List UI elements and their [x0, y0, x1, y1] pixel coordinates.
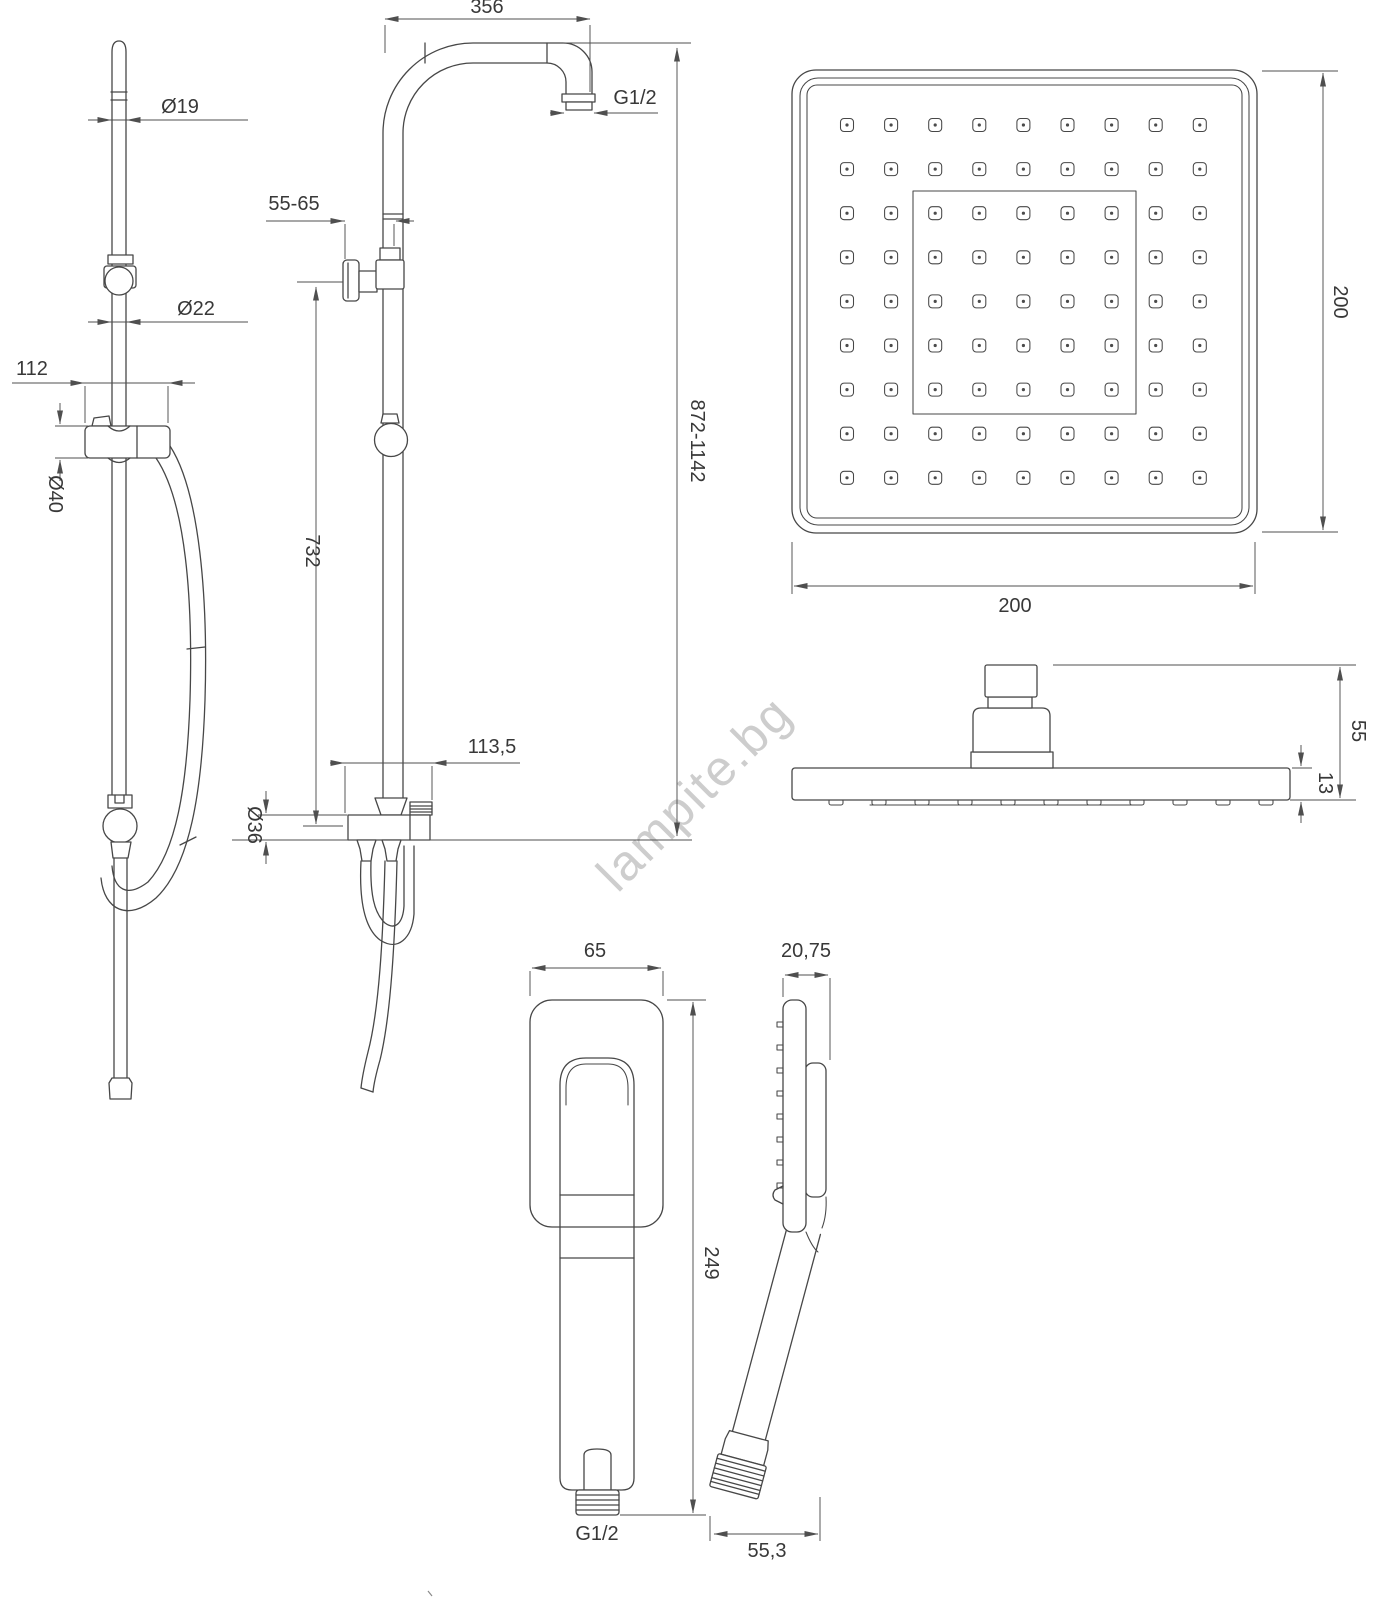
- head-side-view: [792, 665, 1290, 805]
- nozzle-grid: [841, 119, 1207, 485]
- hand-shower-side-view: [709, 1000, 828, 1499]
- dim-head-height: 200: [1329, 285, 1351, 318]
- dim-dia40: Ø40: [44, 475, 66, 513]
- nozzle-dot: [845, 300, 848, 303]
- nozzle-dot: [1066, 212, 1069, 215]
- nozzle-dot: [890, 168, 893, 171]
- nozzle-dot: [934, 388, 937, 391]
- nozzle-dot: [845, 212, 848, 215]
- nozzle-dot: [1198, 168, 1201, 171]
- dim-head-total: 55: [1347, 720, 1369, 742]
- dim-total-height: 872-1142: [686, 399, 708, 482]
- dim-head-width: 200: [998, 595, 1031, 617]
- nozzle-dot: [1110, 300, 1113, 303]
- nozzle-dot: [1198, 432, 1201, 435]
- nozzle-dot: [1022, 476, 1025, 479]
- nozzle-dot: [1022, 123, 1025, 126]
- nozzle-dot: [1110, 344, 1113, 347]
- nozzle-dot: [934, 256, 937, 259]
- nozzle-dot: [934, 212, 937, 215]
- nozzle-dot: [1066, 476, 1069, 479]
- dim-112: 112: [16, 358, 48, 380]
- nozzle-dot: [1154, 300, 1157, 303]
- nozzle-dot: [845, 432, 848, 435]
- dim-356: 356: [470, 0, 503, 18]
- nozzle-dot: [978, 256, 981, 259]
- dim-plate-13: 13: [1314, 772, 1336, 794]
- nozzle-dot: [934, 123, 937, 126]
- nozzle-dot: [890, 123, 893, 126]
- nozzle-dot: [1154, 212, 1157, 215]
- nozzle-dot: [1198, 300, 1201, 303]
- dim-20-75: 20,75: [781, 940, 831, 962]
- nozzle-dot: [890, 432, 893, 435]
- dim-g12-top: G1/2: [613, 87, 656, 109]
- nozzle-dot: [1110, 432, 1113, 435]
- dim-249: 249: [700, 1246, 722, 1279]
- nozzle-dot: [1110, 123, 1113, 126]
- nozzle-dot: [1022, 388, 1025, 391]
- shower-set-dimension-drawing: lampite.bg Ø19 Ø22: [0, 0, 1377, 1600]
- nozzle-dot: [1022, 432, 1025, 435]
- rail-side-view: [85, 41, 206, 1099]
- nozzle-dot: [978, 344, 981, 347]
- nozzle-dot: [845, 476, 848, 479]
- dim-55-3: 55,3: [748, 1540, 787, 1562]
- dim-dia19: Ø19: [161, 96, 199, 118]
- nozzle-dot: [1198, 476, 1201, 479]
- nozzle-dot: [934, 344, 937, 347]
- nozzle-dot: [978, 476, 981, 479]
- nozzle-dot: [890, 476, 893, 479]
- nozzle-dot: [1110, 212, 1113, 215]
- hand-grip-angled: [709, 1224, 828, 1500]
- nozzle-dot: [1066, 123, 1069, 126]
- spray-tick: [777, 1137, 783, 1142]
- nozzle-dot: [1066, 256, 1069, 259]
- spray-tick: [777, 1114, 783, 1119]
- nozzle-dot: [1154, 256, 1157, 259]
- nozzle-dot: [978, 300, 981, 303]
- nozzle-dot: [978, 123, 981, 126]
- head-top-view: [792, 70, 1257, 533]
- column-front-view: [343, 43, 595, 1092]
- nozzle-dot: [1066, 300, 1069, 303]
- head-top-dimensions: 200 200: [792, 71, 1351, 617]
- spray-tick: [777, 1022, 783, 1027]
- nozzle-dot: [890, 212, 893, 215]
- nozzle-dot: [1154, 388, 1157, 391]
- nozzle-dot: [845, 123, 848, 126]
- nozzle-dot: [1198, 344, 1201, 347]
- nozzle-dot: [1022, 212, 1025, 215]
- spray-tick: [777, 1045, 783, 1050]
- dim-dia36: Ø36: [243, 806, 265, 844]
- spray-tick: [777, 1091, 783, 1096]
- dim-g12-hand: G1/2: [575, 1523, 618, 1545]
- nozzle-dot: [978, 432, 981, 435]
- nozzle-dot: [845, 388, 848, 391]
- dim-65: 65: [584, 940, 606, 962]
- nozzle-dot: [1022, 300, 1025, 303]
- hand-spray-ticks: [777, 1022, 783, 1188]
- nozzle-dot: [934, 300, 937, 303]
- nozzle-dot: [890, 256, 893, 259]
- nozzle-dot: [1198, 212, 1201, 215]
- print-speck: [428, 1591, 432, 1596]
- nozzle-dot: [1154, 476, 1157, 479]
- nozzle-dot: [845, 344, 848, 347]
- technical-drawing-page: lampite.bg Ø19 Ø22: [0, 0, 1377, 1600]
- nozzle-dot: [1066, 388, 1069, 391]
- nozzle-dot: [1022, 256, 1025, 259]
- nozzle-dot: [1110, 476, 1113, 479]
- nozzle-dot: [1110, 388, 1113, 391]
- nozzle-dot: [1154, 168, 1157, 171]
- nozzle-dot: [1154, 432, 1157, 435]
- nozzle-dot: [845, 256, 848, 259]
- nozzle-dot: [934, 432, 937, 435]
- nozzle-dot: [1198, 388, 1201, 391]
- nozzle-dot: [1198, 256, 1201, 259]
- nozzle-dot: [1066, 168, 1069, 171]
- nozzle-dot: [1110, 168, 1113, 171]
- nozzle-dot: [1066, 432, 1069, 435]
- dim-732: 732: [301, 534, 323, 567]
- column-dimensions: 356 G1/2 872-1142 55-65 732 Ø36 113,5: [232, 0, 708, 864]
- nozzle-dot: [934, 476, 937, 479]
- watermark-text: lampite.bg: [586, 685, 803, 902]
- nozzle-dot: [1110, 256, 1113, 259]
- nozzle-dot: [890, 344, 893, 347]
- dim-113-5: 113,5: [468, 736, 517, 758]
- nozzle-dot: [1022, 168, 1025, 171]
- nozzle-dot: [978, 168, 981, 171]
- nozzle-dot: [934, 168, 937, 171]
- spray-tick: [777, 1068, 783, 1073]
- spray-tick: [777, 1160, 783, 1165]
- nozzle-dot: [1154, 123, 1157, 126]
- nozzle-dot: [890, 388, 893, 391]
- nozzle-dot: [978, 212, 981, 215]
- nozzle-dot: [1022, 344, 1025, 347]
- nozzle-dot: [845, 168, 848, 171]
- dim-dia22: Ø22: [177, 298, 215, 320]
- nozzle-dot: [1154, 344, 1157, 347]
- nozzle-dot: [1198, 123, 1201, 126]
- nozzle-dot: [1066, 344, 1069, 347]
- nozzle-dot: [890, 300, 893, 303]
- nozzle-dot: [978, 388, 981, 391]
- dim-55-65: 55-65: [268, 193, 319, 215]
- hand-front-dimensions: 65 249 G1/2: [530, 940, 722, 1545]
- hand-shower-front-view: [530, 1000, 663, 1515]
